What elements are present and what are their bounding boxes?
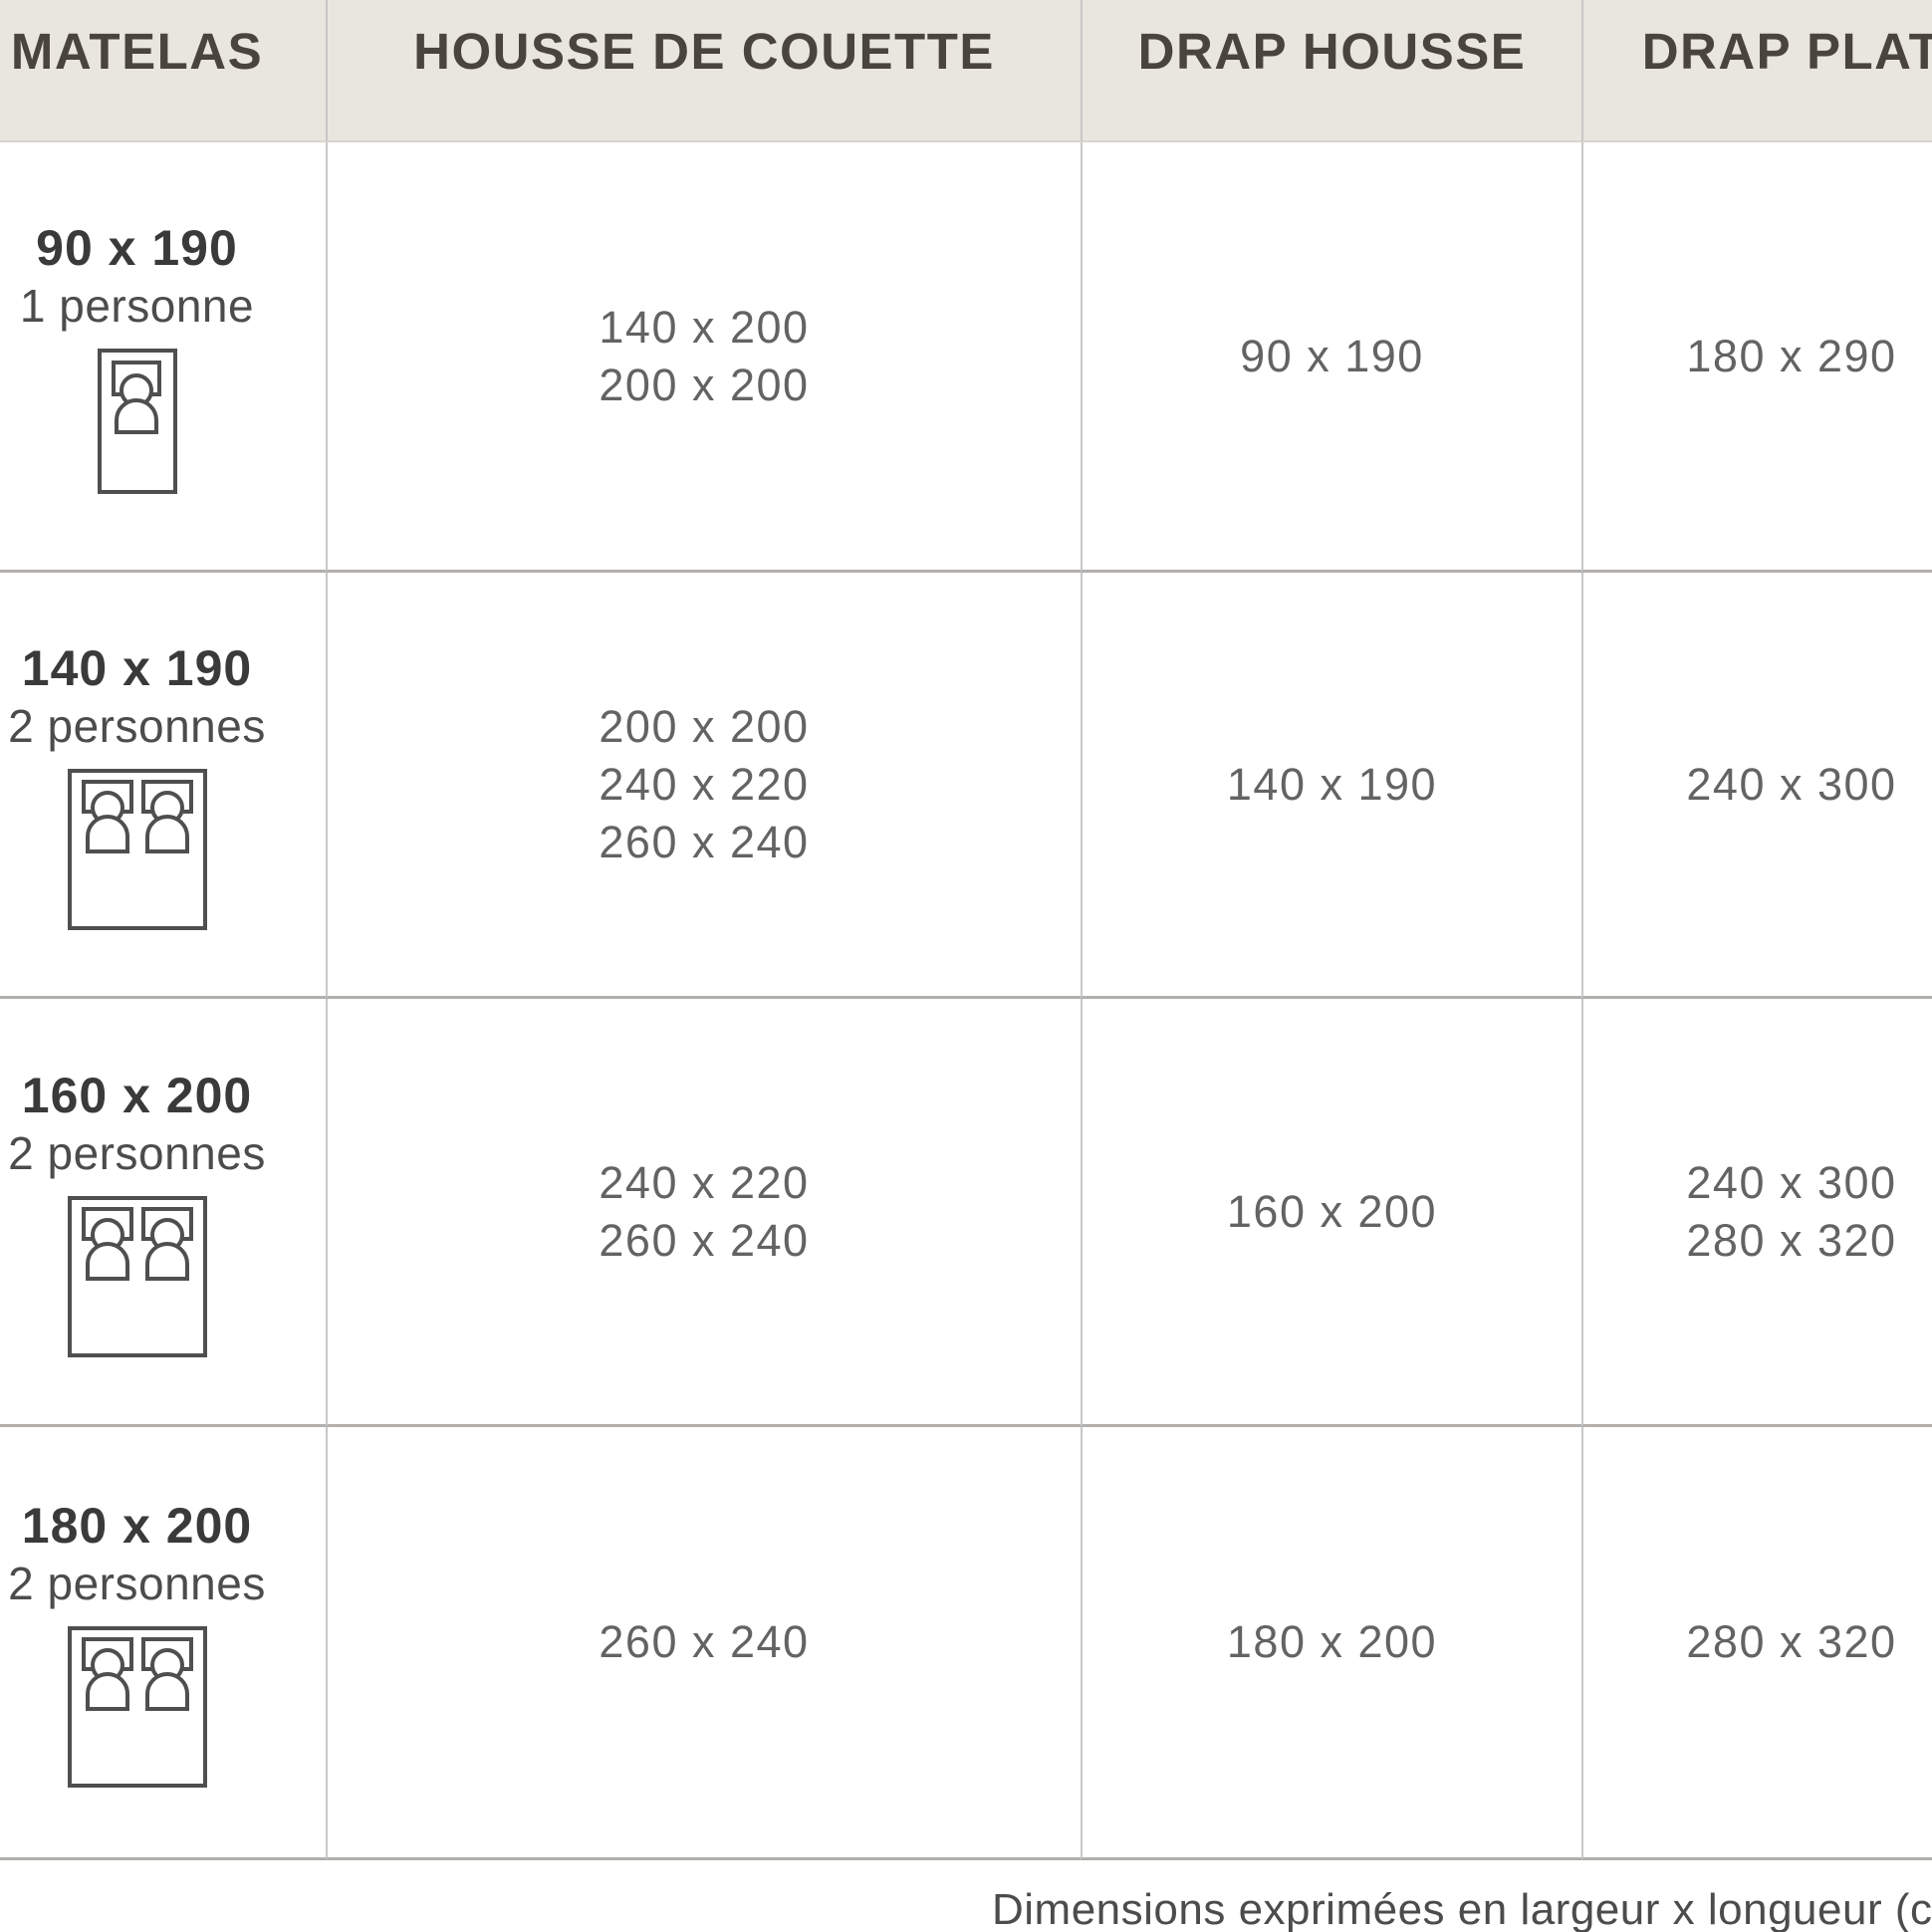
size-value: 180 x 290 xyxy=(1686,328,1896,385)
housse-de-couette-cell: 140 x 200 200 x 200 xyxy=(326,142,1081,573)
table-row: 90 x 190 1 personne 140 x 200 200 x 200 … xyxy=(0,142,1932,573)
size-value: 260 x 240 xyxy=(599,1613,809,1671)
matelas-cell: 90 x 190 1 personne xyxy=(0,142,326,573)
double-bed-icon xyxy=(68,769,207,930)
mattress-size-label: 90 x 190 xyxy=(36,219,238,277)
size-value: 140 x 200 xyxy=(599,299,809,357)
size-value: 240 x 300 xyxy=(1686,756,1896,814)
size-value: 200 x 200 xyxy=(599,698,809,756)
header-matelas: MATELAS xyxy=(0,0,326,142)
housse-de-couette-cell: 260 x 240 xyxy=(326,1427,1081,1860)
size-value: 240 x 300 xyxy=(1686,1154,1896,1212)
table-row: 160 x 200 2 personnes 240 x 220 260 x 24… xyxy=(0,999,1932,1427)
capacity-label: 1 personne xyxy=(20,277,254,335)
drap-plat-cell: 180 x 290 xyxy=(1581,142,1932,573)
size-value: 240 x 220 xyxy=(599,756,809,814)
drap-plat-cell: 240 x 300 xyxy=(1581,573,1932,999)
size-value: 280 x 320 xyxy=(1686,1212,1896,1270)
housse-de-couette-cell: 200 x 200 240 x 220 260 x 240 xyxy=(326,573,1081,999)
double-bed-icon xyxy=(68,1196,207,1357)
table-header-row: MATELAS HOUSSE DE COUETTE DRAP HOUSSE DR… xyxy=(0,0,1932,142)
table-row: 180 x 200 2 personnes 260 x 240 180 x 20… xyxy=(0,1427,1932,1860)
size-value: 140 x 190 xyxy=(1227,756,1437,814)
capacity-label: 2 personnes xyxy=(8,1124,266,1182)
size-value: 260 x 240 xyxy=(599,1212,809,1270)
drap-housse-cell: 180 x 200 xyxy=(1081,1427,1581,1860)
header-drap-housse: DRAP HOUSSE xyxy=(1081,0,1581,142)
dimensions-note: Dimensions exprimées en largeur x longue… xyxy=(992,1885,1932,1932)
drap-housse-cell: 90 x 190 xyxy=(1081,142,1581,573)
size-guide-page: MATELAS HOUSSE DE COUETTE DRAP HOUSSE DR… xyxy=(0,0,1932,1932)
bedding-size-table: MATELAS HOUSSE DE COUETTE DRAP HOUSSE DR… xyxy=(0,0,1932,1860)
size-value: 160 x 200 xyxy=(1227,1183,1437,1241)
mattress-size-label: 160 x 200 xyxy=(22,1067,252,1124)
header-housse-de-couette: HOUSSE DE COUETTE xyxy=(326,0,1081,142)
size-value: 260 x 240 xyxy=(599,814,809,871)
size-value: 240 x 220 xyxy=(599,1154,809,1212)
table-row: 140 x 190 2 personnes 200 x 200 240 x 22… xyxy=(0,573,1932,999)
drap-housse-cell: 160 x 200 xyxy=(1081,999,1581,1427)
size-value: 200 x 200 xyxy=(599,357,809,414)
matelas-cell: 160 x 200 2 personnes xyxy=(0,999,326,1427)
size-value: 180 x 200 xyxy=(1227,1613,1437,1671)
drap-housse-cell: 140 x 190 xyxy=(1081,573,1581,999)
capacity-label: 2 personnes xyxy=(8,1555,266,1612)
size-value: 280 x 320 xyxy=(1686,1613,1896,1671)
matelas-cell: 180 x 200 2 personnes xyxy=(0,1427,326,1860)
housse-de-couette-cell: 240 x 220 260 x 240 xyxy=(326,999,1081,1427)
single-bed-icon xyxy=(98,349,177,494)
size-value: 90 x 190 xyxy=(1240,328,1424,385)
mattress-size-label: 140 x 190 xyxy=(22,639,252,697)
mattress-size-label: 180 x 200 xyxy=(22,1497,252,1555)
capacity-label: 2 personnes xyxy=(8,697,266,755)
double-bed-icon xyxy=(68,1626,207,1788)
matelas-cell: 140 x 190 2 personnes xyxy=(0,573,326,999)
header-drap-plat: DRAP PLAT xyxy=(1581,0,1932,142)
drap-plat-cell: 240 x 300 280 x 320 xyxy=(1581,999,1932,1427)
drap-plat-cell: 280 x 320 xyxy=(1581,1427,1932,1860)
